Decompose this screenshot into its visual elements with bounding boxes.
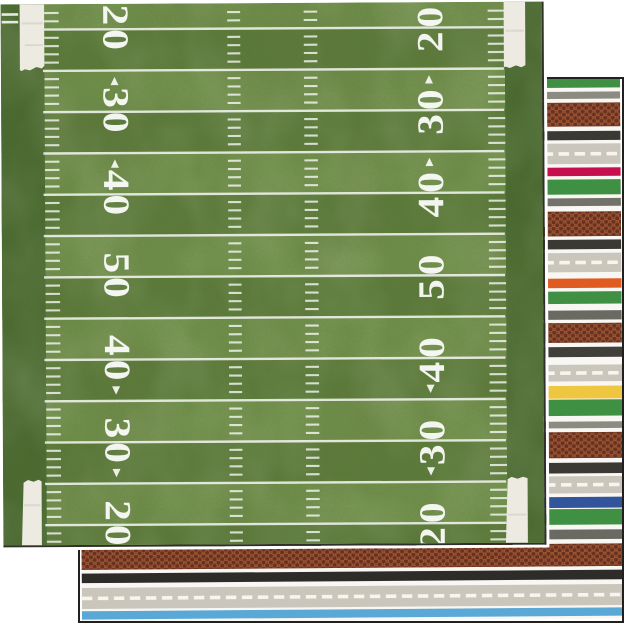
svg-text:20: 20	[95, 4, 136, 53]
svg-text:20: 20	[410, 3, 451, 52]
svg-text:30: 30	[410, 85, 451, 134]
svg-text:50: 50	[411, 251, 452, 300]
svg-text:20: 20	[413, 498, 454, 547]
svg-text:30: 30	[412, 416, 453, 465]
svg-text:30: 30	[95, 87, 136, 136]
svg-text:40: 40	[411, 168, 452, 217]
svg-text:20: 20	[97, 500, 138, 547]
svg-text:50: 50	[96, 252, 137, 301]
svg-text:40: 40	[412, 333, 453, 382]
svg-text:40: 40	[95, 170, 136, 219]
svg-text:40: 40	[96, 335, 137, 384]
svg-text:30: 30	[97, 417, 138, 466]
